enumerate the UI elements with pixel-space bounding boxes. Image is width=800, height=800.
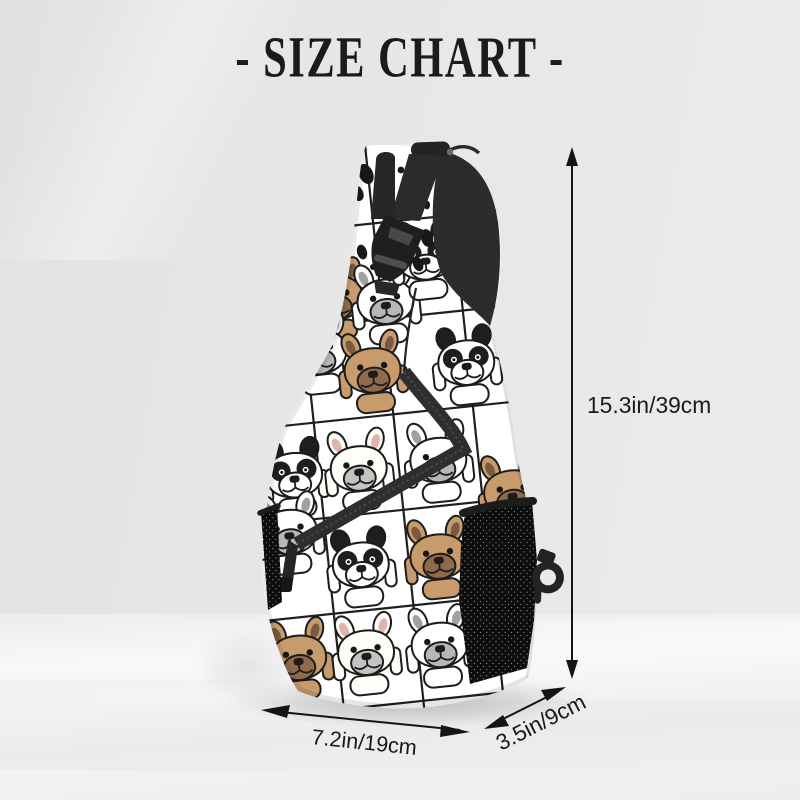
svg-text:15.3in/39cm: 15.3in/39cm: [587, 392, 711, 418]
svg-text:7.2in/19cm: 7.2in/19cm: [310, 724, 418, 760]
